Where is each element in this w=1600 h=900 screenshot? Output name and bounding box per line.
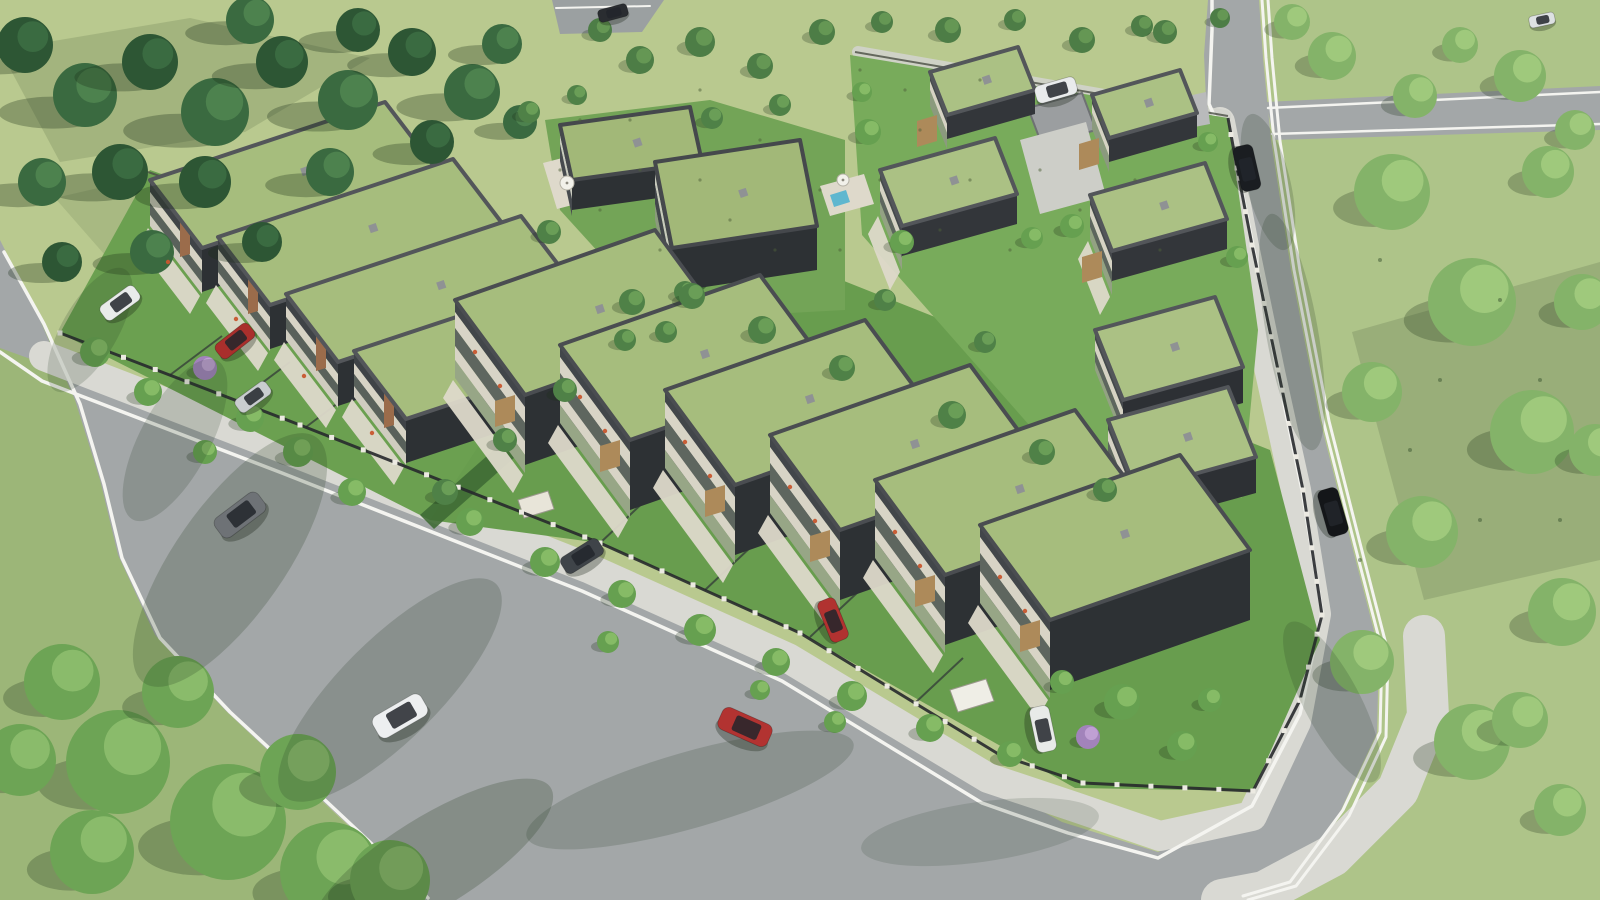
terrace-flowers: [893, 530, 897, 534]
bank-speckle: [1538, 378, 1542, 382]
meadow-speckle: [1158, 248, 1161, 251]
meadow-speckle: [818, 188, 821, 191]
tree-highlight: [864, 121, 878, 135]
fence-post: [1282, 728, 1287, 733]
tree-highlight: [1102, 480, 1115, 493]
fence-post: [1301, 488, 1306, 493]
meadow-speckle: [1038, 168, 1041, 171]
fence-post: [1062, 774, 1067, 779]
tree-highlight: [466, 510, 481, 525]
tree-highlight: [709, 109, 721, 121]
terrace-flowers: [998, 575, 1002, 579]
tree-highlight: [1455, 30, 1475, 50]
fence-post: [392, 460, 397, 465]
fence-post: [551, 522, 556, 527]
tree-highlight: [1570, 113, 1592, 135]
fence-post: [885, 684, 890, 689]
tree-highlight: [142, 38, 173, 69]
fence-post: [1030, 763, 1035, 768]
meadow-speckle: [1078, 208, 1081, 211]
fence-post: [298, 423, 303, 428]
meadow-speckle: [1133, 178, 1136, 181]
fence-post: [1182, 785, 1187, 790]
tree-highlight: [146, 233, 170, 257]
meadow-speckle: [758, 138, 761, 141]
fence-post: [1114, 782, 1119, 787]
tree-highlight: [899, 232, 912, 245]
patio-umbrella: [560, 176, 574, 190]
terrace-flowers: [918, 564, 922, 568]
tree-highlight: [772, 650, 787, 665]
tree-highlight: [104, 718, 161, 775]
terrace-flowers: [708, 474, 712, 478]
meadow-speckle: [598, 208, 601, 211]
tree-highlight: [926, 716, 941, 731]
fence-post: [1148, 784, 1153, 789]
tree-highlight: [1513, 54, 1542, 83]
bank-speckle: [1378, 258, 1382, 262]
tree-highlight: [257, 225, 279, 247]
meadow-speckle: [938, 228, 941, 231]
tree-highlight: [1364, 367, 1397, 400]
tree-highlight: [948, 403, 963, 418]
fence-post: [856, 666, 861, 671]
tree-highlight: [57, 245, 79, 267]
tree-highlight: [1162, 22, 1175, 35]
bank-speckle: [1478, 518, 1482, 522]
tree-highlight: [406, 32, 432, 58]
fence-post: [943, 719, 948, 724]
meadow-speckle: [698, 88, 701, 91]
fence-post: [1243, 209, 1248, 214]
meadow-speckle: [658, 248, 661, 251]
tree-highlight: [882, 291, 894, 303]
tree-highlight: [441, 481, 455, 495]
terrace-flowers: [1023, 609, 1027, 613]
tree-highlight: [838, 357, 852, 371]
tree-highlight: [10, 729, 50, 769]
umbrella-pole: [566, 182, 569, 185]
tree-highlight: [1412, 501, 1452, 541]
umbrella-pole: [842, 179, 845, 182]
meadow-speckle: [858, 68, 861, 71]
tree-highlight: [848, 683, 865, 700]
tree-highlight: [859, 84, 870, 95]
terrace-flowers: [234, 317, 238, 321]
fence-post: [827, 648, 832, 653]
tree-highlight: [1078, 29, 1092, 43]
scene-svg: [0, 0, 1600, 900]
tree-highlight: [777, 96, 789, 108]
terrace-flowers: [302, 374, 306, 378]
tree-highlight: [879, 13, 891, 25]
tree-highlight: [198, 160, 227, 189]
tree-highlight: [1178, 733, 1195, 750]
terrace-flowers: [683, 440, 687, 444]
fence-post: [722, 596, 727, 601]
fence-post: [1294, 454, 1299, 459]
fence-post: [1081, 781, 1086, 786]
meadow-speckle: [1008, 248, 1011, 251]
fence-post: [424, 472, 429, 477]
fence-post: [1266, 758, 1271, 763]
tree-highlight: [1553, 788, 1582, 817]
tree-highlight: [605, 633, 617, 645]
terrace-flowers: [578, 395, 582, 399]
tree-highlight: [1117, 687, 1137, 707]
tree-highlight: [352, 11, 376, 35]
tree-highlight: [944, 19, 958, 33]
fence-post: [660, 568, 665, 573]
terrace-flowers: [473, 350, 477, 354]
meadow-speckle: [903, 88, 906, 91]
tree-highlight: [1382, 160, 1424, 202]
tree-highlight: [348, 480, 363, 495]
fence-post: [280, 416, 285, 421]
tree-highlight: [1460, 265, 1508, 313]
meadow-speckle: [558, 168, 561, 171]
fence-post: [519, 510, 524, 515]
tree-highlight: [1326, 36, 1352, 62]
fence-post: [972, 737, 977, 742]
fence-post: [1320, 613, 1325, 618]
tree-highlight: [1353, 635, 1388, 670]
tree-highlight: [1541, 150, 1570, 179]
fence-post: [582, 535, 587, 540]
bank-speckle: [1358, 558, 1362, 562]
meadow-speckle: [918, 128, 921, 131]
tree-highlight: [574, 87, 585, 98]
terrace-flowers: [603, 429, 607, 433]
meadow-speckle: [578, 118, 581, 121]
fence-post: [784, 624, 789, 629]
meadow-speckle: [968, 178, 971, 181]
tree-highlight: [628, 291, 642, 305]
fence-post: [1251, 789, 1256, 794]
tree-highlight: [696, 29, 713, 46]
fence-post: [753, 610, 758, 615]
fence-post: [1216, 787, 1221, 792]
tree-highlight: [1553, 583, 1590, 620]
tree-highlight: [756, 55, 770, 69]
tree-highlight: [757, 682, 768, 693]
tree-highlight: [1217, 10, 1228, 21]
tree-highlight: [832, 713, 844, 725]
tree-highlight: [622, 331, 634, 343]
meadow-speckle: [838, 248, 841, 251]
tree-highlight: [497, 27, 519, 49]
terrace-flowers: [166, 260, 170, 264]
tree-highlight: [17, 21, 48, 52]
tree-highlight: [112, 148, 143, 179]
tree-highlight: [340, 75, 373, 108]
tree-highlight: [502, 430, 515, 443]
bank-speckle: [1498, 298, 1502, 302]
tree-highlight: [52, 650, 94, 692]
tree-highlight: [1207, 690, 1220, 703]
bank-speckle: [1408, 448, 1412, 452]
tree-highlight: [81, 816, 127, 862]
tree-highlight: [562, 380, 575, 393]
terrace-flowers: [370, 431, 374, 435]
tree-highlight: [426, 123, 450, 147]
fence-post: [1304, 512, 1309, 517]
tree-highlight: [1059, 672, 1072, 685]
fence-post: [361, 447, 366, 452]
meadow-speckle: [878, 178, 881, 181]
fence-post: [329, 435, 334, 440]
fence-post: [1309, 545, 1314, 550]
tree-highlight: [1038, 441, 1052, 455]
tree-highlight: [1069, 216, 1082, 229]
fence-post: [629, 554, 634, 559]
tree-highlight: [144, 380, 159, 395]
meadow-speckle: [1098, 118, 1101, 121]
aerial-render-viewport: [0, 0, 1600, 900]
tree-highlight: [663, 323, 675, 335]
fence-post: [1228, 132, 1233, 137]
bank-speckle: [1558, 518, 1562, 522]
meadow-speckle: [638, 168, 641, 171]
tree-highlight: [541, 549, 558, 566]
tree-highlight: [1006, 743, 1020, 757]
tree-highlight: [1521, 396, 1567, 442]
terrace-flowers: [813, 519, 817, 523]
tree-highlight: [636, 48, 651, 63]
tree-highlight: [36, 162, 62, 188]
tree-highlight: [1029, 229, 1041, 241]
tree-highlight: [1085, 727, 1098, 740]
fence-post: [1255, 268, 1260, 273]
pool-umbrella: [837, 174, 849, 186]
meadow-speckle: [978, 78, 981, 81]
meadow-speckle: [698, 178, 701, 181]
tree-highlight: [244, 0, 270, 26]
tree-highlight: [1512, 696, 1543, 727]
fence-post: [153, 367, 158, 372]
tree-highlight: [982, 333, 994, 345]
fence-post: [691, 582, 696, 587]
fence-post: [1314, 579, 1319, 584]
fence-post: [1250, 243, 1255, 248]
tree-highlight: [688, 285, 702, 299]
meadow-speckle: [628, 118, 631, 121]
fence-post: [487, 497, 492, 502]
fence-post: [914, 701, 919, 706]
terrace-flowers: [788, 485, 792, 489]
tree-highlight: [818, 21, 832, 35]
tree-highlight: [1234, 248, 1246, 260]
meadow-speckle: [728, 218, 731, 221]
tree-highlight: [1205, 134, 1216, 145]
tree-highlight: [324, 152, 350, 178]
tree-highlight: [618, 582, 633, 597]
tree-highlight: [526, 103, 538, 115]
tree-highlight: [758, 318, 773, 333]
tree-highlight: [1287, 7, 1307, 27]
tree-highlight: [1139, 17, 1151, 29]
tree-highlight: [546, 222, 559, 235]
terrace-flowers: [498, 384, 502, 388]
tree-highlight: [206, 83, 243, 120]
tree-highlight: [1409, 77, 1433, 101]
tree-highlight: [1012, 11, 1024, 23]
tree-highlight: [696, 616, 714, 634]
meadow-speckle: [773, 248, 776, 251]
fence-post: [121, 355, 126, 360]
tree-highlight: [464, 68, 495, 99]
fence-post: [798, 631, 803, 636]
bank-speckle: [1438, 378, 1442, 382]
